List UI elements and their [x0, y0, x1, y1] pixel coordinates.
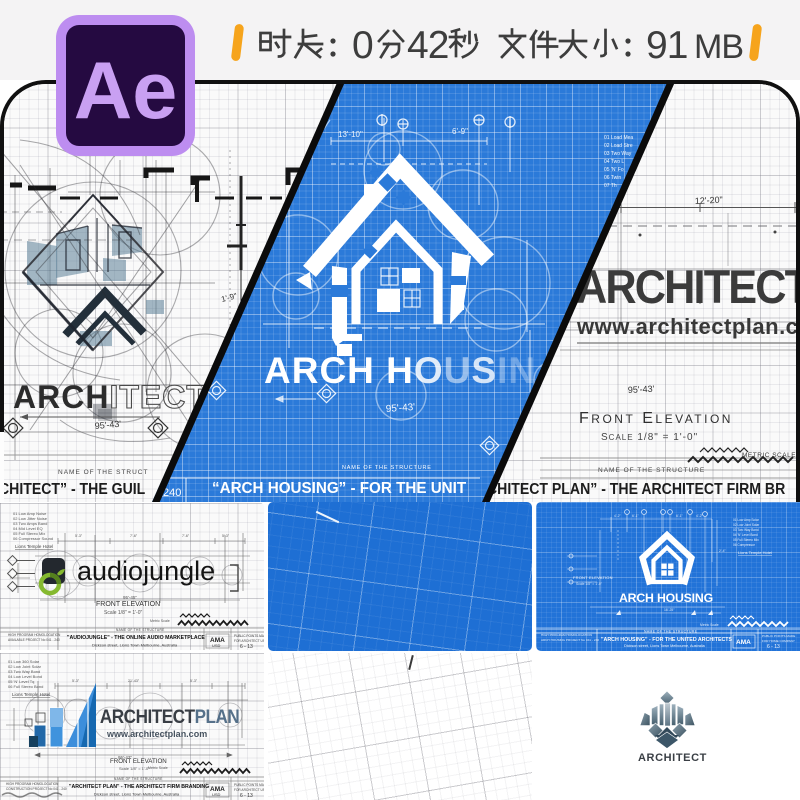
svg-text:5'-3": 5'-3" — [190, 679, 198, 683]
svg-text:06 Twin: 06 Twin — [604, 175, 621, 181]
svg-text:95'-43': 95'-43' — [385, 402, 415, 415]
svg-text:NAME OF THE STRUCTURE: NAME OF THE STRUCTURE — [116, 628, 165, 632]
svg-text:FOR ARCHITECT USE: FOR ARCHITECT USE — [234, 639, 264, 643]
svg-text:6'-1": 6'-1" — [632, 514, 640, 518]
svg-text:NAME OF THE STRUCTURE: NAME OF THE STRUCTURE — [114, 777, 163, 781]
svg-text:2'-4": 2'-4" — [719, 549, 727, 553]
svg-text:USD: USD — [212, 643, 221, 648]
svg-text:0: 0 — [352, 24, 374, 67]
svg-text:7'-6": 7'-6" — [130, 534, 138, 538]
svg-text:7'-6": 7'-6" — [182, 534, 190, 538]
svg-text:03 Two Way: 03 Two Way — [604, 151, 632, 157]
svg-text:FOR ARCHITECT USE: FOR ARCHITECT USE — [234, 788, 264, 792]
svg-text:AVAILABLE PROJECT No 041 - 240: AVAILABLE PROJECT No 041 - 240 — [8, 638, 60, 642]
svg-text:Metric Scale: Metric Scale — [148, 766, 168, 770]
svg-text:ARCHITECT: ARCHITECT — [13, 379, 207, 415]
svg-text:NAME OF THE STRUCTURE: NAME OF THE STRUCTURE — [598, 467, 705, 474]
svg-text:USD: USD — [212, 792, 221, 797]
svg-text:Lions Temple Hotel: Lions Temple Hotel — [15, 544, 53, 549]
svg-text:HIGH PROGRAM HOMOLOGATION: HIGH PROGRAM HOMOLOGATION — [8, 633, 61, 637]
svg-text:6 - 13: 6 - 13 — [240, 644, 253, 650]
svg-text:95'-45": 95'-45" — [123, 595, 137, 600]
svg-text:PUBLIC POINTS MADE: PUBLIC POINTS MADE — [234, 634, 264, 638]
svg-text:91: 91 — [646, 24, 687, 67]
svg-text:240: 240 — [163, 487, 181, 499]
svg-text:ARCHITECTPLAN: ARCHITECTPLAN — [100, 706, 239, 727]
svg-text:AMA: AMA — [736, 639, 751, 646]
svg-text:02 Load Stre: 02 Load Stre — [604, 143, 633, 149]
svg-text:Metric Scale: Metric Scale — [150, 619, 170, 623]
svg-text:FRONT ELEVATION: FRONT ELEVATION — [573, 575, 613, 580]
svg-text:NAME OF THE STRUCT: NAME OF THE STRUCT — [58, 469, 148, 476]
svg-text:16'-25": 16'-25" — [664, 608, 675, 612]
svg-text:05 'N' Fo: 05 'N' Fo — [604, 167, 624, 173]
svg-text:95'-43": 95'-43" — [118, 755, 132, 760]
svg-text:HIGH PROGRAM HOMOLOGATION: HIGH PROGRAM HOMOLOGATION — [541, 633, 592, 637]
svg-text:PUBLIC POINTS MADE: PUBLIC POINTS MADE — [762, 634, 795, 638]
svg-text:02 Low Joint Solar: 02 Low Joint Solar — [733, 523, 760, 527]
svg-text:Metric Scale: Metric Scale — [700, 623, 719, 627]
svg-text:95'-43': 95'-43' — [94, 419, 122, 431]
svg-text:4'-2": 4'-2" — [696, 514, 704, 518]
svg-text:21'-43": 21'-43" — [128, 679, 140, 683]
svg-text:"ARCHITECT PLAN" - THE ARCHITE: "ARCHITECT PLAN" - THE ARCHITECT FIRM BR… — [69, 784, 209, 790]
svg-text:FRONT ELEVATION: FRONT ELEVATION — [96, 601, 160, 608]
svg-text:05 Full Stereo Mix: 05 Full Stereo Mix — [733, 538, 759, 542]
svg-text:METRIC SCALE: METRIC SCALE — [742, 452, 796, 459]
svg-text:audiojungle: audiojungle — [77, 556, 215, 586]
svg-text:Lions Temple Hotel: Lions Temple Hotel — [12, 692, 50, 697]
svg-text:Scale 1/8" = 1'-0": Scale 1/8" = 1'-0" — [119, 766, 150, 771]
svg-text:Dickson street, Lions Town Mel: Dickson street, Lions Town Melbourne, Au… — [94, 792, 180, 797]
svg-text:13'-10": 13'-10" — [338, 130, 363, 139]
svg-text:NAME OF THE STRUCTURE: NAME OF THE STRUCTURE — [342, 465, 432, 471]
svg-text:"AUDIOJUNGLE" - THE ONLINE AUD: "AUDIOJUNGLE" - THE ONLINE AUDIO MARKETP… — [67, 635, 205, 641]
svg-text:5'-3": 5'-3" — [222, 534, 230, 538]
svg-text:06 Compressor Sound: 06 Compressor Sound — [13, 536, 53, 541]
svg-text:ARCH HOUSING PROJECT No 041 -: ARCH HOUSING PROJECT No 041 - 240 — [541, 638, 599, 642]
svg-text:01 Load Mea: 01 Load Mea — [604, 135, 633, 141]
svg-text:MB: MB — [694, 28, 743, 66]
svg-text:6 - 13: 6 - 13 — [240, 793, 253, 799]
svg-text:Scale 1/8" = 1'-0": Scale 1/8" = 1'-0" — [104, 610, 143, 616]
svg-text:12'-20": 12'-20" — [695, 195, 723, 206]
svg-text:07 Th: 07 Th — [604, 183, 617, 189]
svg-text:1'-9": 1'-9" — [220, 291, 238, 304]
svg-text:Dickson street, Lions Town Mel: Dickson street, Lions Town Melbourne, Au… — [92, 643, 178, 648]
svg-text:"ARCH HOUSING" - FOR THE UNITE: "ARCH HOUSING" - FOR THE UNITED ARCHITEC… — [601, 637, 733, 643]
svg-text:4'-2": 4'-2" — [614, 514, 622, 518]
svg-text:01 Low Amp Solar: 01 Low Amp Solar — [733, 518, 760, 522]
svg-text:FOR HOME COMPANY: FOR HOME COMPANY — [762, 639, 795, 643]
svg-text:5'-3": 5'-3" — [72, 679, 80, 683]
svg-text:www.architectplan.com: www.architectplan.com — [106, 729, 207, 739]
svg-text:Dickson street, Lions Town Mel: Dickson street, Lions Town Melbourne, Au… — [624, 644, 706, 648]
svg-text:NAME OF THE STRUCTURE: NAME OF THE STRUCTURE — [644, 630, 698, 634]
svg-text:6'-1": 6'-1" — [676, 514, 684, 518]
svg-text:42: 42 — [407, 24, 448, 67]
svg-text:03 Two Way Bond: 03 Two Way Bond — [733, 528, 759, 532]
svg-text:ARCH HOUSING: ARCH HOUSING — [619, 591, 713, 605]
svg-text:95'-43': 95'-43' — [628, 384, 655, 395]
svg-text:HIGH PROGRAM HOMOLOGATION: HIGH PROGRAM HOMOLOGATION — [6, 782, 59, 786]
svg-text:04 Two L: 04 Two L — [604, 159, 624, 165]
svg-text:Scale 1/8" = 1'-0": Scale 1/8" = 1'-0" — [576, 582, 603, 586]
svg-text:06 Compressor: 06 Compressor — [733, 543, 756, 547]
svg-text:6 - 13: 6 - 13 — [767, 644, 780, 650]
svg-text:ARCHITECT: ARCHITECT — [638, 752, 707, 764]
svg-text:04 'N' Level Bond: 04 'N' Level Bond — [733, 533, 758, 537]
svg-text:5'-3": 5'-3" — [75, 534, 83, 538]
svg-text:CONSTRUCTION PROJECT No 041 -: CONSTRUCTION PROJECT No 041 - 240 — [6, 787, 67, 791]
svg-text:6'-9": 6'-9" — [452, 127, 468, 136]
svg-text:Lions Temple Hotel: Lions Temple Hotel — [738, 550, 772, 555]
svg-text:PUBLIC POINTS MADE: PUBLIC POINTS MADE — [234, 783, 264, 787]
